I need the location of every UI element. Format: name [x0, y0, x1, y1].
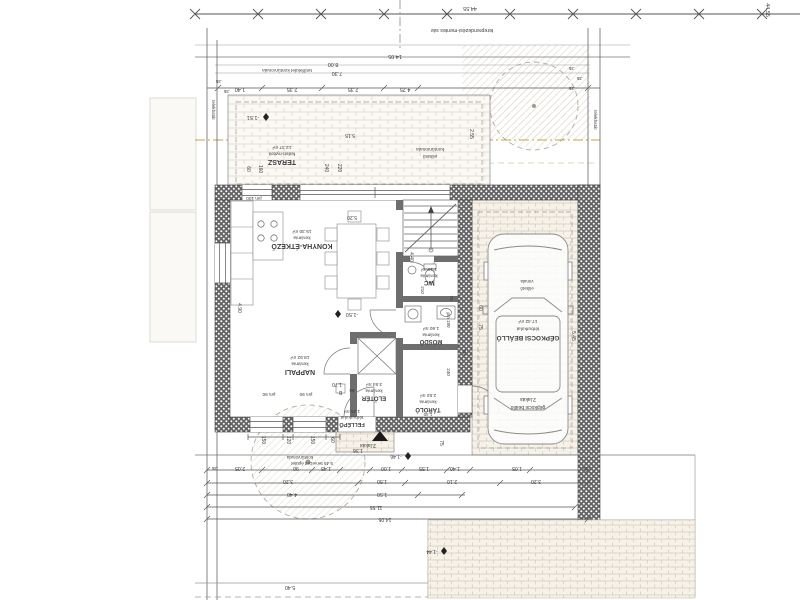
dim-carport: 5.45 [570, 331, 576, 341]
dim-wall: .35 [215, 79, 222, 84]
parapet-mark: pm 180 [446, 312, 451, 328]
room-tarolo-finish: kerámia [419, 399, 436, 405]
room-wc-finish: kerámia [420, 273, 437, 279]
dim-chain-a: .35 [211, 466, 218, 471]
dim-wall: .35 [568, 66, 575, 71]
carport-unit-label-2: 2.lakás [520, 396, 536, 402]
room-nappali-area: 18.52 m² [290, 354, 309, 360]
dim-chain-b: 2.10 [447, 478, 457, 484]
built-in-wardrobe [358, 338, 396, 374]
room-tarolo-area: 2.52 m² [419, 392, 436, 398]
room-fellepo-name: FELLÉPŐ [339, 421, 365, 429]
site-length-dim: 44.55 [463, 5, 477, 11]
room-konyha-finish: kerámia [293, 235, 310, 241]
dim-window: 60 [329, 437, 335, 443]
property-line-label-left: telekhatár [211, 100, 216, 120]
floor-plan-drawing: 44.5544.55tereprendezési-mentes sáv14.05… [0, 0, 800, 600]
dim-chain-d: 11.55 [370, 504, 383, 510]
room-gepkocsi-area: 17.42 m² [518, 318, 537, 324]
canopy-line-note-2: vonala [520, 279, 533, 284]
dim-chain-a: 1.55 [419, 465, 429, 471]
room-wc-area: 1.10 m² [420, 266, 437, 272]
room-gepkocsi-name: GÉPKOCSI BEÁLLÓ [497, 334, 560, 343]
dim-room: 90 [462, 349, 467, 355]
terrace-area [228, 95, 490, 188]
room-eloter-finish: kerámia [365, 388, 382, 394]
dim-chain-a: 1.45 [321, 465, 331, 471]
dim-wall: .35 [568, 86, 575, 91]
spot-elevation: -1.46 [390, 453, 402, 459]
canopy-contour-note-2: előtető [422, 153, 437, 159]
canopy-line-note-1: előtető [520, 286, 534, 291]
dim-stair: 75 [449, 295, 454, 301]
dim-chain-a: 2.05 [235, 465, 245, 471]
dim-terrace: 2.55 [468, 129, 474, 139]
dim-chain-a: 1.00 [381, 465, 391, 471]
floor-plan-canvas: 44.5544.55tereprendezési-mentes sáv14.05… [0, 0, 800, 600]
dim-wall: .35 [576, 76, 583, 81]
dim-bottom: 1.36 [353, 447, 363, 453]
dim-chain-b: 3.20 [531, 478, 541, 484]
room-terasz-name: TERASZ [267, 158, 296, 165]
spot-elevation: -1.44 [426, 548, 438, 554]
neighbor-building-outline [150, 98, 196, 342]
room-fellepo-finish: térburkolat [340, 414, 363, 420]
dim-room: 1.70 [332, 381, 342, 387]
dim-stair: 4.40 [408, 252, 414, 262]
room-wc-name: WC [423, 279, 434, 285]
dim-terrace: 5.15 [345, 132, 355, 138]
dim-window: 160 [257, 165, 263, 174]
dim-chain-a: 90 [293, 465, 299, 471]
room-terasz-area: 12.37 m² [272, 144, 291, 150]
dim-chain-top: 2.35 [287, 86, 298, 92]
room-mosdo-area: 1.60 m² [422, 325, 439, 331]
canopy-contour-note-1: kontúrvonala [416, 146, 444, 152]
room-konyha-area: 15.30 m² [292, 228, 311, 234]
dim-chain-a: 1.05 [512, 465, 522, 471]
dim-room: 4.90 [236, 303, 242, 313]
dim-room: 5.20 [347, 214, 357, 220]
dim-chain-top: 4.25 [400, 86, 411, 92]
dim-chain-top: 2.35 [348, 86, 359, 92]
room-eloter-name: ELŐTÉR [361, 395, 386, 403]
building-distance-note-1: kontúrvonala [286, 455, 313, 460]
room-nappali-name: NAPPALI [285, 368, 315, 375]
dim-top: 14.05 [388, 53, 402, 59]
dim-chain-e: 14.05 [378, 516, 391, 522]
dim-room: 240 [446, 368, 451, 376]
dim-carport: 75 [477, 324, 483, 330]
room-gepkocsi-finish: térburkolat [516, 326, 539, 332]
dim-chain-c: 1.50 [377, 491, 387, 497]
dim-chain-c: 4.40 [287, 491, 297, 497]
room-mosdo-finish: kerámia [422, 332, 439, 338]
dim-window: 120 [285, 436, 291, 445]
dim-window: 150 [309, 436, 315, 445]
dim-chain-b: 3.20 [283, 478, 293, 484]
dim-carport: 60 [477, 305, 483, 311]
dim-window: 60 [245, 166, 251, 172]
dim-stair: 210 [420, 286, 425, 294]
entrance-step [336, 432, 394, 452]
dim-top: 7.30 [332, 70, 343, 76]
staircase [403, 200, 458, 256]
room-tarolo-name: TÁROLÓ [415, 406, 441, 414]
door-tag-width: 90 [349, 388, 355, 393]
setback-strip-note: tereprendezési-mentes sáv [430, 27, 493, 33]
spot-elevation: -1.50 [346, 311, 359, 317]
spot-elevation: -1.51 [247, 114, 260, 120]
dim-window: 220 [336, 164, 342, 173]
tree-top [490, 62, 578, 150]
dim-window: 240 [323, 164, 329, 173]
room-mosdo-name: MOSDÓ [419, 338, 442, 346]
carport-unit-label-1: gépkocsi beálló [511, 404, 546, 410]
dim-top: 8.00 [328, 61, 339, 67]
dim-chain-b: 1.50 [377, 478, 387, 484]
dim-wall: .35 [223, 89, 230, 94]
dim-chain-a: 1.40 [450, 465, 460, 471]
dim-chain-a: .35 [582, 466, 589, 471]
dim-window: 150 [260, 436, 266, 445]
paving-bottom-right [428, 520, 695, 598]
site-length-dim-right: 44.55 [764, 3, 770, 17]
room-terasz-finish: fedett-nyitott [268, 151, 295, 157]
property-line-label-right: telekhatár [593, 110, 598, 130]
dim-chain-top: 1.40 [235, 86, 246, 92]
room-eloter-area: 3.54 m² [365, 381, 382, 387]
dim-bottom: 5.40 [285, 584, 295, 590]
room-konyha-name: KONYHA-ÉTKEZŐ [271, 242, 333, 251]
parapet-mark: pm 90 [262, 392, 275, 397]
roof-contour-note: tetőfelület kontúrvonala [262, 67, 312, 73]
room-fellepo-area: 1.35 m² [343, 408, 360, 414]
dim-window: 75 [438, 440, 444, 446]
room-nappali-finish: kerámia [291, 361, 308, 367]
parapet-mark: pm 100 [246, 196, 262, 201]
parapet-mark: pm 90 [299, 392, 312, 397]
